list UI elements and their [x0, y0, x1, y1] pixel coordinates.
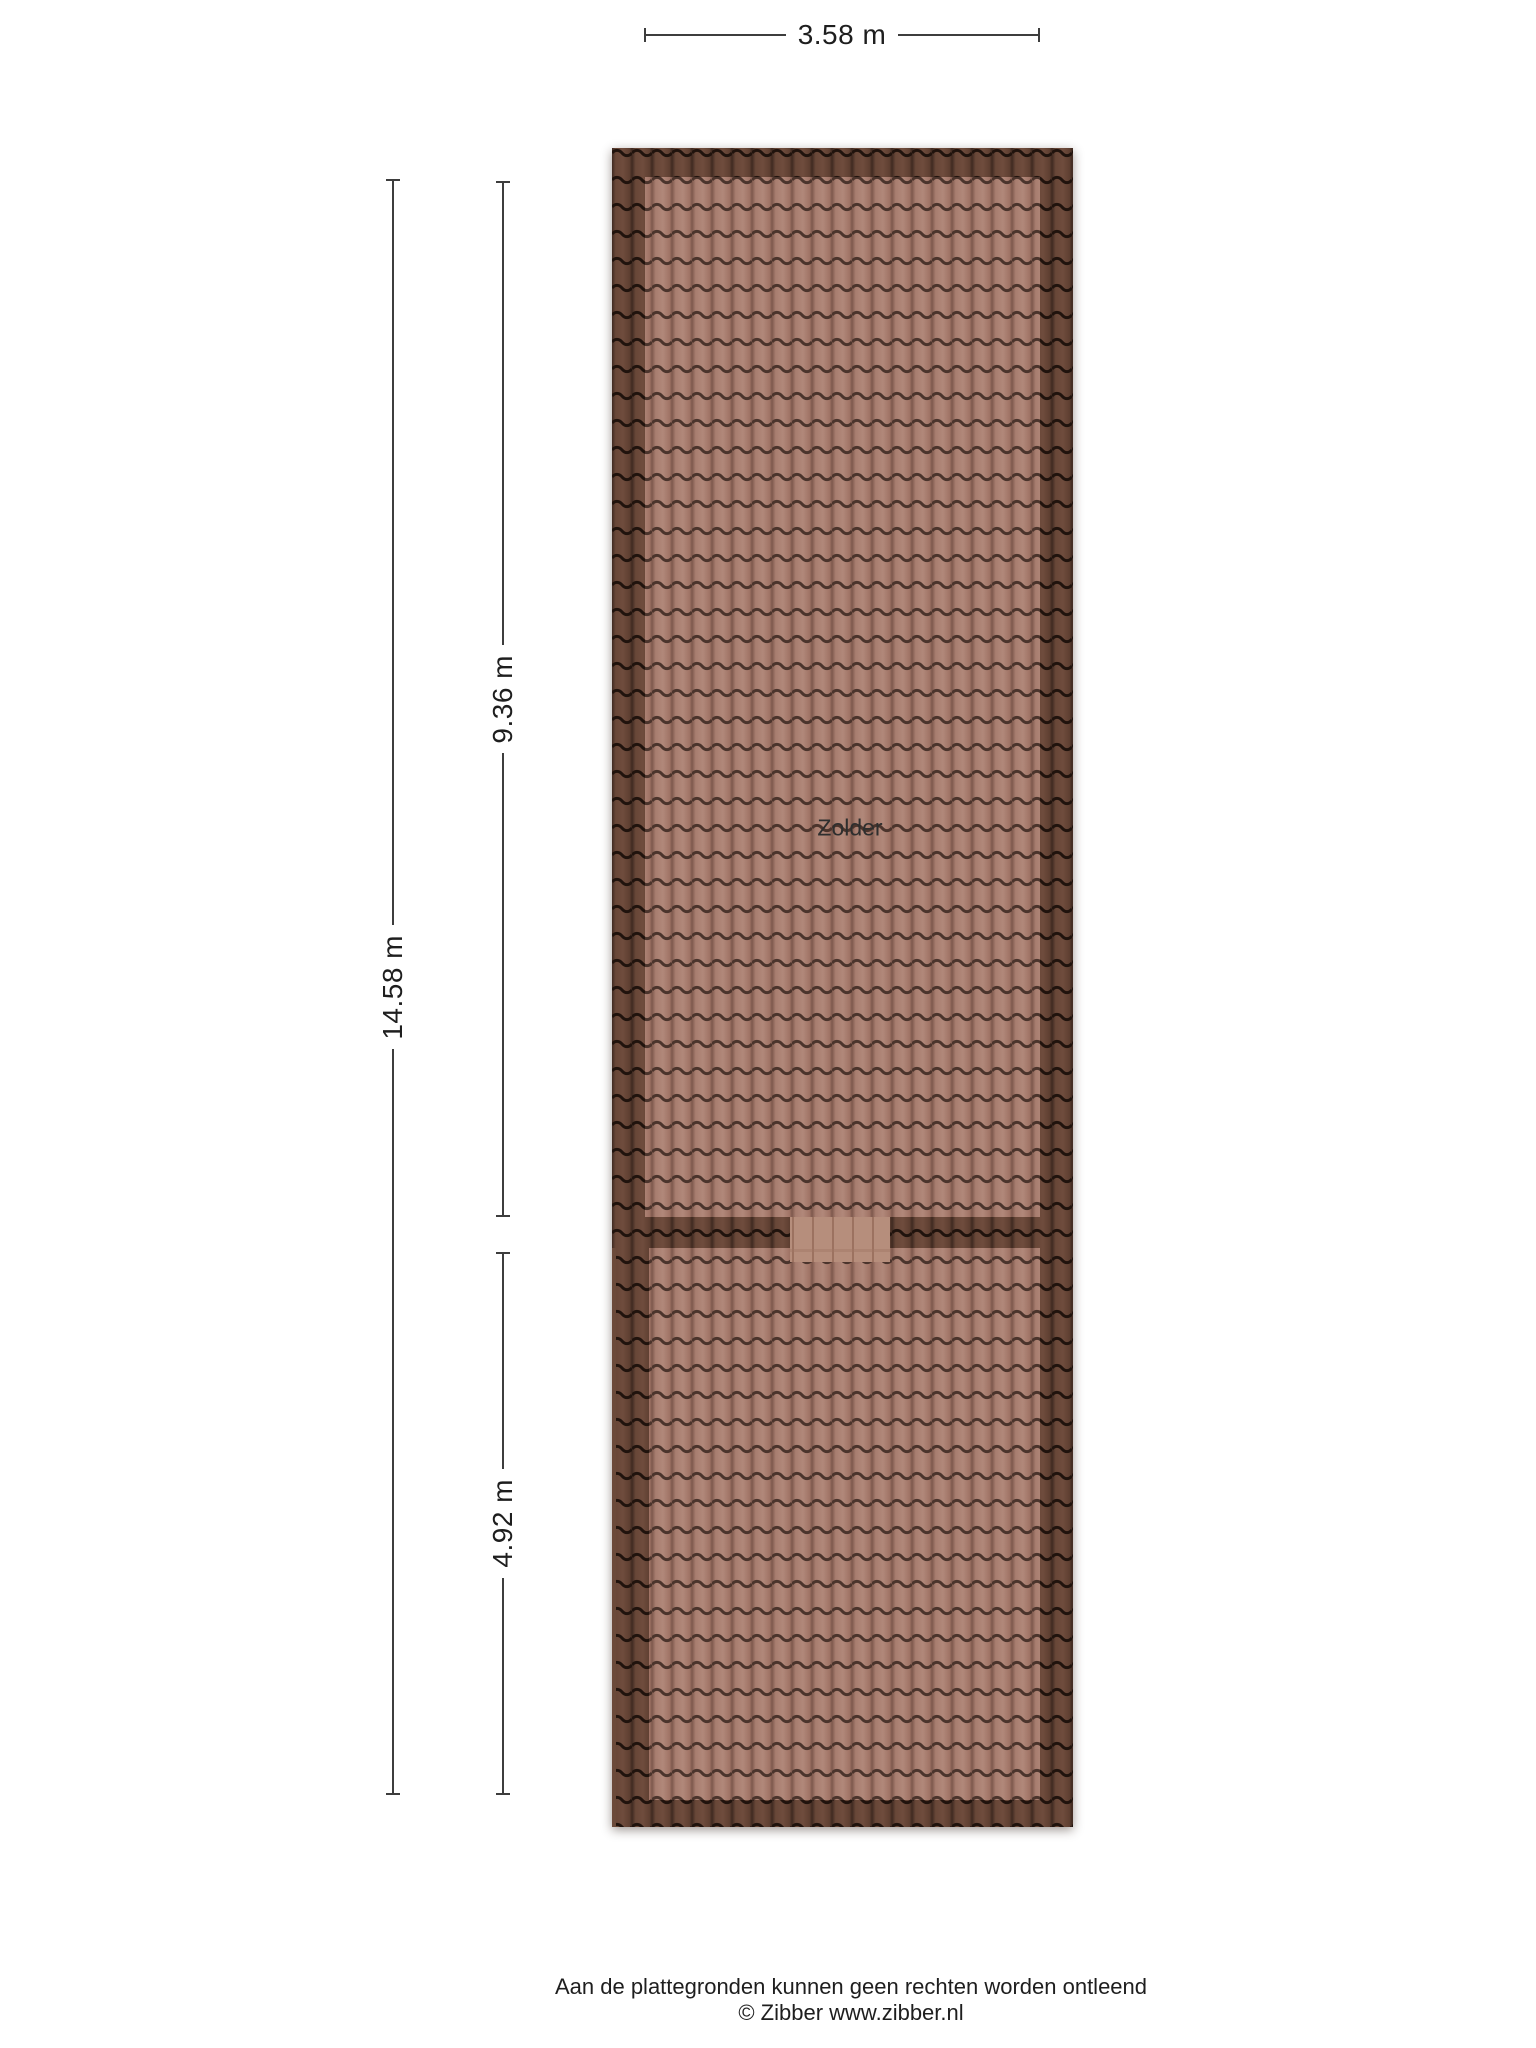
- roof-plan: Zolder: [612, 148, 1073, 1827]
- footer-disclaimer: Aan de plattegronden kunnen geen rechten…: [555, 1974, 1147, 2000]
- floorplan-page: 3.58 m 14.58 m 9.36 m 4.92 m: [0, 0, 1536, 2048]
- dim-lower-height: 4.92 m: [490, 1252, 516, 1795]
- dim-tick: [1038, 28, 1040, 42]
- room-label: Zolder: [817, 815, 882, 842]
- dim-line: [646, 34, 786, 36]
- dim-lower-height-label: 4.92 m: [487, 1469, 519, 1578]
- dim-line: [502, 753, 504, 1215]
- dim-tick: [496, 1215, 510, 1217]
- dim-line: [502, 1578, 504, 1793]
- dim-line: [502, 1254, 504, 1469]
- dim-total-height-label: 14.58 m: [377, 925, 409, 1050]
- footer: Aan de plattegronden kunnen geen rechten…: [555, 1974, 1147, 2026]
- dim-upper-height-label: 9.36 m: [487, 645, 519, 754]
- dim-line: [898, 34, 1038, 36]
- dim-total-height: 14.58 m: [380, 179, 406, 1795]
- footer-copyright: © Zibber www.zibber.nl: [555, 2000, 1147, 2026]
- dim-upper-height: 9.36 m: [490, 181, 516, 1217]
- dim-width: 3.58 m: [644, 22, 1040, 48]
- dim-width-label: 3.58 m: [786, 19, 899, 51]
- dim-tick: [496, 1793, 510, 1795]
- dim-tick: [386, 1793, 400, 1795]
- dim-line: [392, 181, 394, 925]
- dim-line: [502, 183, 504, 645]
- dim-line: [392, 1049, 394, 1793]
- roof-tiles-graphic: [612, 148, 1073, 1827]
